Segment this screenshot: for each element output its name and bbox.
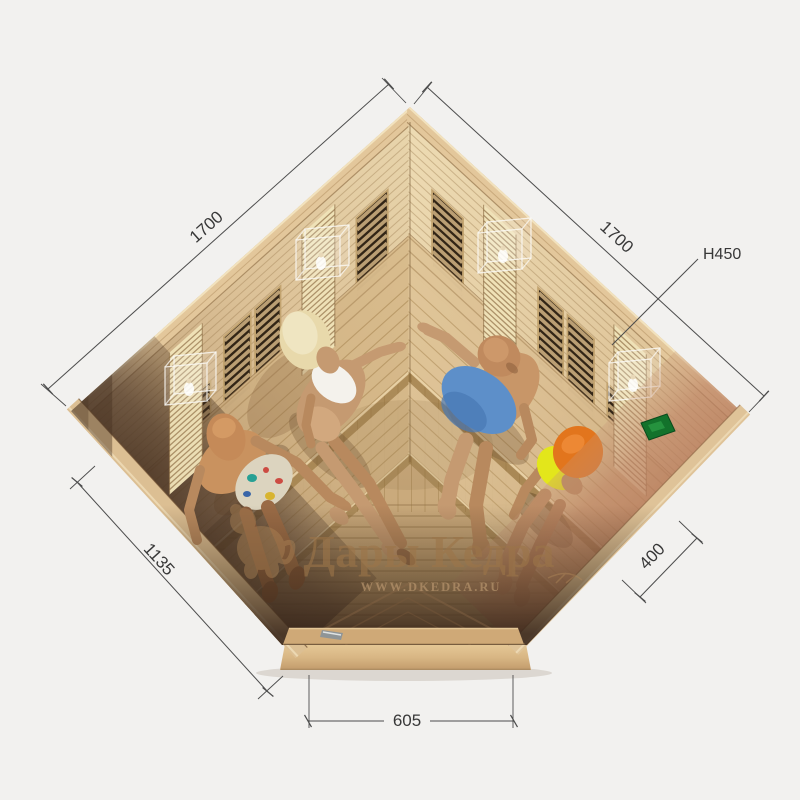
svg-text:605: 605 — [393, 711, 421, 730]
svg-text:WWW.DKEDRA.RU: WWW.DKEDRA.RU — [361, 580, 502, 594]
svg-text:Дары Кедра: Дары Кедра — [304, 526, 555, 577]
svg-text:H450: H450 — [703, 246, 741, 263]
